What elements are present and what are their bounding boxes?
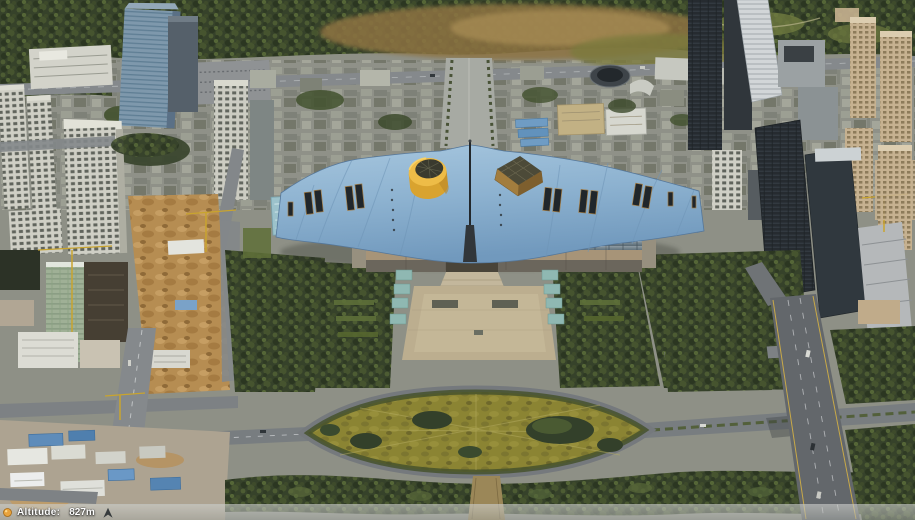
axis-boulevard <box>440 58 498 148</box>
buildings-west-edge <box>0 246 128 368</box>
aerial-map-canvas[interactable] <box>0 0 915 520</box>
altitude-label: Altitude: <box>17 507 60 518</box>
earth-3d-viewport[interactable]: Altitude: 827m <box>0 0 915 520</box>
altitude-value: 827m <box>69 507 95 518</box>
oval-lawn-park <box>308 392 645 472</box>
north-arrow-icon <box>102 507 114 519</box>
warehouse-blue-roofs <box>515 118 548 147</box>
amber-dot-icon <box>3 508 12 517</box>
altitude-hud-bar: Altitude: 827m <box>0 504 915 520</box>
